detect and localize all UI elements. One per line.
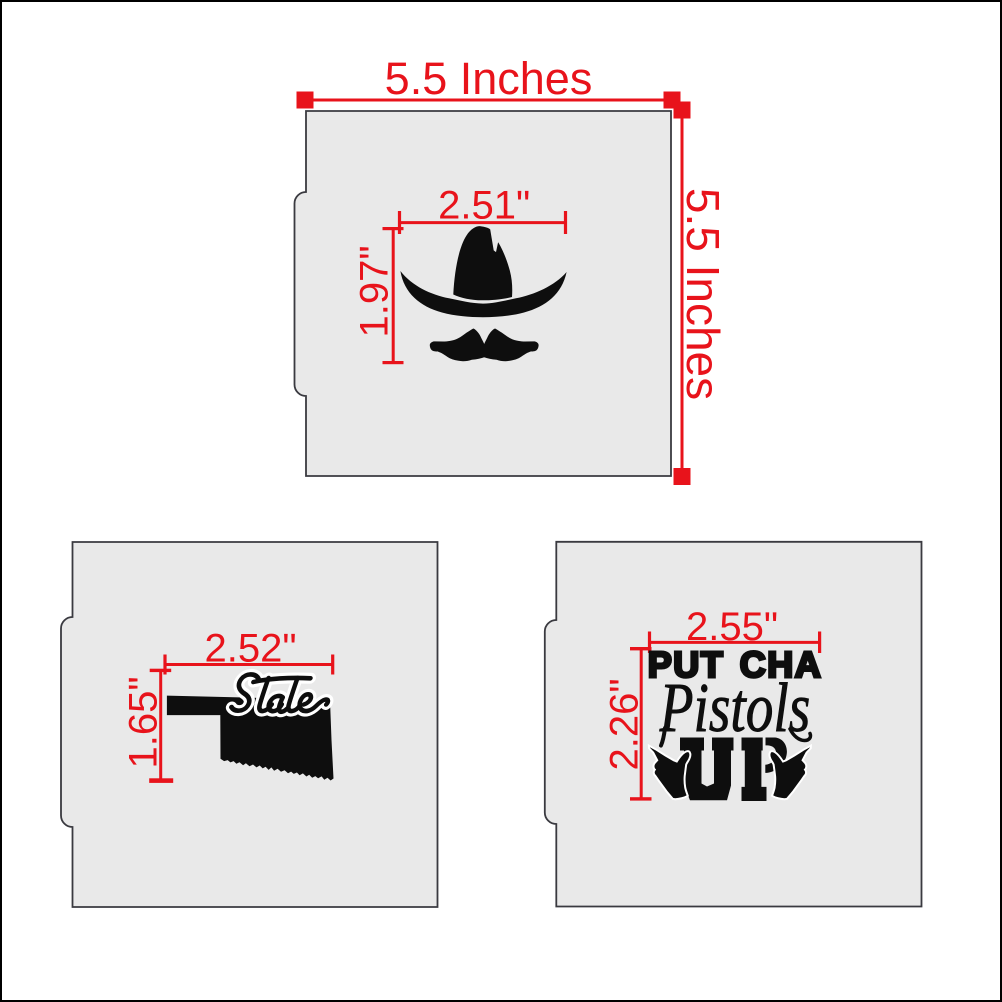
svg-text:Pistols: Pistols [659, 669, 810, 747]
svg-text:5.5 Inches: 5.5 Inches [385, 53, 593, 104]
svg-text:2.52": 2.52" [204, 627, 296, 671]
svg-text:2.26": 2.26" [603, 678, 647, 770]
svg-text:5.5 Inches: 5.5 Inches [677, 188, 729, 400]
svg-text:1.65": 1.65" [122, 676, 166, 768]
svg-text:2.55": 2.55" [686, 605, 778, 649]
svg-text:1.97": 1.97" [353, 245, 397, 337]
svg-text:2.51": 2.51" [438, 184, 530, 228]
